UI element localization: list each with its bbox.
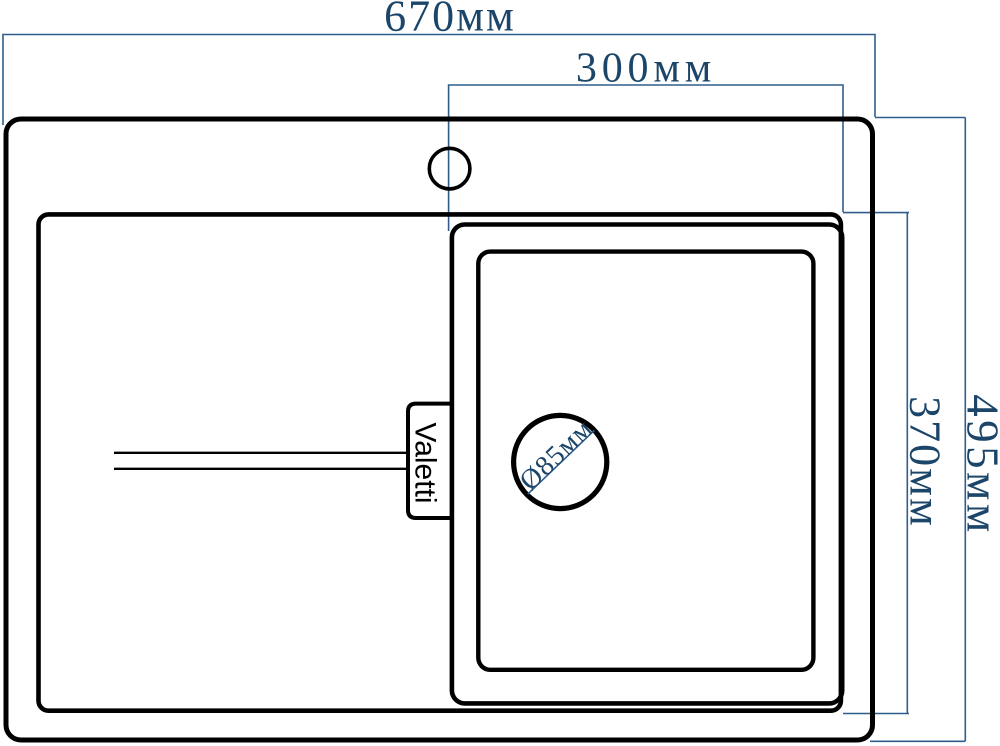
svg-text:Valetti: Valetti — [409, 422, 442, 503]
svg-text:495мм: 495мм — [958, 394, 1000, 535]
svg-text:370мм: 370мм — [901, 396, 950, 528]
svg-text:670мм: 670мм — [384, 0, 516, 41]
svg-text:300мм: 300мм — [576, 46, 716, 92]
